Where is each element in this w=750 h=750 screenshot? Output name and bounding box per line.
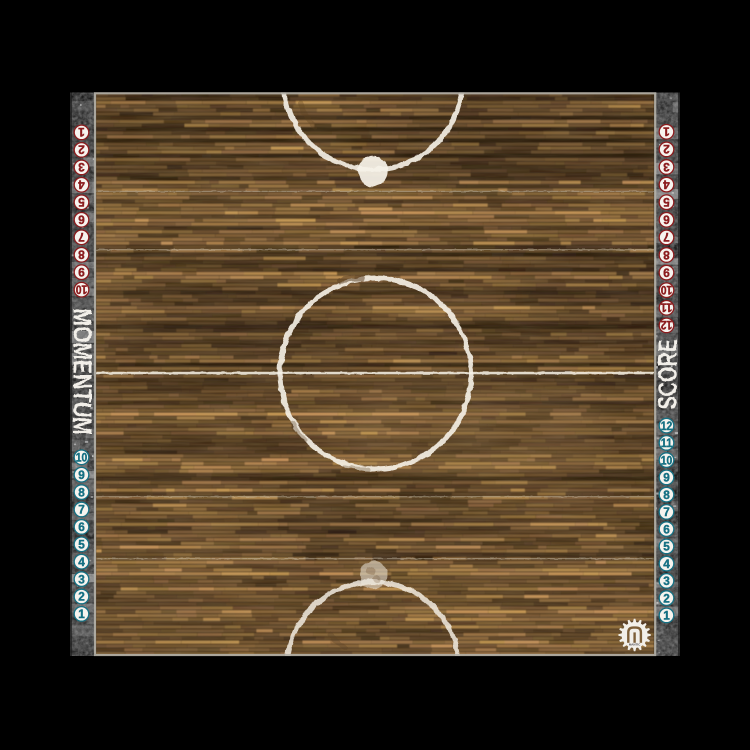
svg-text:8: 8 [78, 485, 85, 499]
svg-text:5: 5 [663, 540, 670, 554]
svg-text:2: 2 [663, 142, 670, 156]
svg-text:5: 5 [78, 538, 85, 552]
svg-text:1: 1 [663, 609, 670, 623]
svg-text:12: 12 [660, 318, 672, 332]
svg-text:MANTIC: MANTIC [629, 644, 641, 647]
svg-text:10: 10 [661, 453, 673, 467]
svg-text:7: 7 [663, 230, 670, 244]
svg-text:2: 2 [663, 591, 670, 605]
svg-text:7: 7 [663, 505, 670, 519]
svg-text:7: 7 [78, 230, 85, 244]
svg-text:5: 5 [78, 195, 85, 209]
svg-text:4: 4 [78, 178, 85, 192]
svg-text:SCORE: SCORE [653, 339, 683, 410]
svg-text:6: 6 [663, 213, 670, 227]
svg-text:8: 8 [663, 248, 670, 262]
svg-text:5: 5 [663, 195, 670, 209]
svg-text:2: 2 [78, 590, 85, 604]
svg-text:8: 8 [78, 248, 85, 262]
svg-text:9: 9 [78, 265, 85, 279]
svg-text:4: 4 [663, 177, 670, 191]
svg-text:11: 11 [661, 436, 673, 450]
svg-text:10: 10 [75, 283, 87, 297]
svg-text:1: 1 [78, 125, 85, 139]
svg-text:6: 6 [78, 213, 85, 227]
svg-text:1: 1 [78, 607, 85, 621]
svg-text:9: 9 [78, 468, 85, 482]
svg-text:9: 9 [663, 471, 670, 485]
svg-text:3: 3 [78, 572, 85, 586]
svg-text:MOMENTUM: MOMENTUM [68, 309, 98, 436]
svg-text:10: 10 [660, 283, 672, 297]
svg-text:12: 12 [661, 419, 673, 433]
svg-text:3: 3 [663, 574, 670, 588]
svg-text:6: 6 [663, 522, 670, 536]
svg-text:1: 1 [663, 125, 670, 139]
svg-text:3: 3 [663, 160, 670, 174]
svg-text:9: 9 [663, 265, 670, 279]
svg-text:7: 7 [78, 503, 85, 517]
svg-text:2: 2 [78, 143, 85, 157]
svg-text:4: 4 [78, 555, 85, 569]
svg-text:4: 4 [663, 557, 670, 571]
svg-text:6: 6 [78, 520, 85, 534]
svg-text:11: 11 [660, 301, 672, 315]
svg-text:3: 3 [78, 160, 85, 174]
svg-text:8: 8 [663, 488, 670, 502]
svg-text:10: 10 [76, 451, 88, 465]
